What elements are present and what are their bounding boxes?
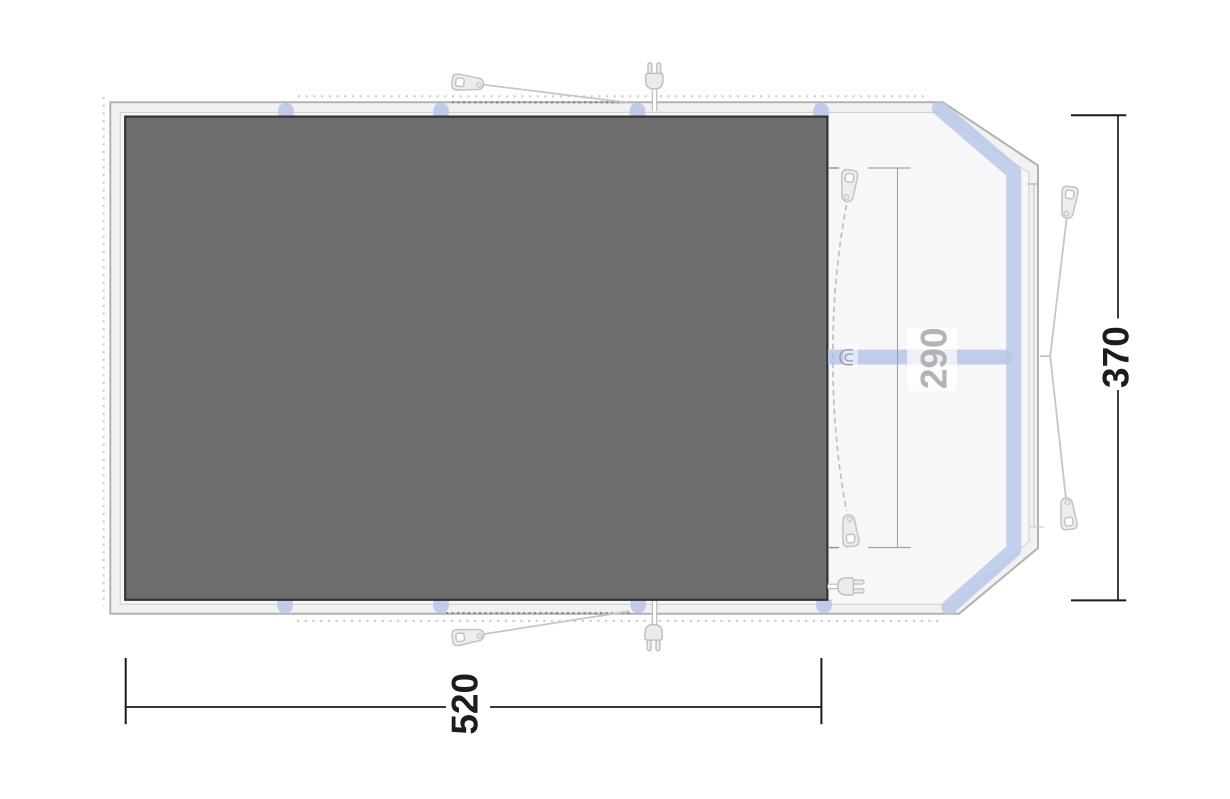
svg-text:520: 520 <box>445 673 486 735</box>
svg-text:290: 290 <box>914 327 955 389</box>
svg-text:370: 370 <box>1096 326 1137 388</box>
